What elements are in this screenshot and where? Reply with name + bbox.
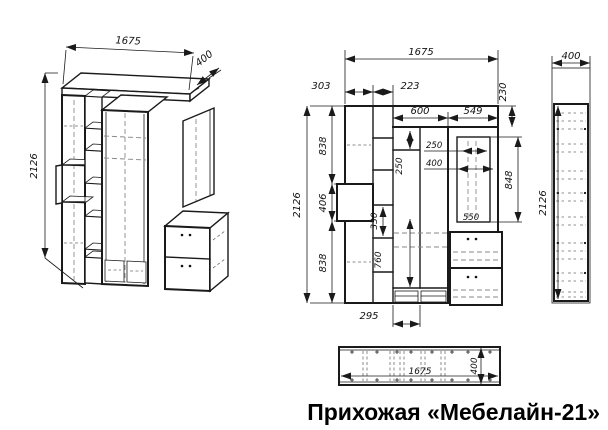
front-dim-col1: 303: [311, 81, 330, 92]
plan-view: 1675 400: [339, 347, 500, 385]
front-dim-upper-838: 838: [318, 136, 329, 155]
front-ref-cabinet-550: 550: [463, 213, 479, 223]
front-dim-overall-height: 2126: [292, 192, 303, 217]
front-dim-shelf-250: 250: [395, 157, 405, 174]
isometric-view: 1675 400 2126: [29, 35, 228, 291]
front-mirror: [457, 137, 490, 222]
front-dim-mirror-section: 549: [463, 106, 482, 117]
front-cabinet: [450, 232, 502, 305]
iso-dim-width: 1675: [115, 35, 141, 47]
front-dim-wardrobe: 600: [410, 106, 429, 117]
front-dim-clearance-760: 760: [374, 251, 384, 268]
iso-wardrobe: [102, 95, 167, 286]
side-view: 400 2126: [538, 51, 590, 303]
side-dim-height: 2126: [538, 190, 549, 215]
front-dim-lower-838: 838: [318, 253, 329, 272]
plan-dim-width: 1675: [409, 367, 432, 377]
iso-dim-depth: 400: [194, 49, 216, 69]
front-ref-mirror-400: 400: [426, 159, 442, 169]
front-dim-niche-406: 406: [318, 193, 329, 212]
front-dim-shoe-295: 295: [359, 311, 378, 322]
front-dim-mirror-848: 848: [504, 170, 515, 189]
iso-dim-height: 2126: [29, 153, 40, 178]
front-elevation-view: 1675 303 223 600 549 230 2126 838 406 83…: [292, 47, 522, 327]
drawing-sheet: 1675 400 2126: [0, 0, 608, 430]
product-title: Прихожая «Мебелайн-21»: [307, 399, 600, 426]
side-dim-depth: 400: [561, 51, 580, 62]
furniture-drawing: 1675 400 2126: [0, 0, 608, 430]
plan-dim-depth: 400: [470, 357, 480, 374]
front-ref-mirror-250: 250: [426, 141, 442, 151]
iso-cabinet: [165, 211, 228, 291]
front-dim-shelf-330: 330: [370, 212, 380, 229]
front-dim-col2: 223: [400, 81, 419, 92]
front-dim-cornice: 230: [498, 82, 509, 101]
front-dim-overall-width: 1675: [408, 47, 433, 58]
iso-mirror-panel: [183, 108, 214, 207]
